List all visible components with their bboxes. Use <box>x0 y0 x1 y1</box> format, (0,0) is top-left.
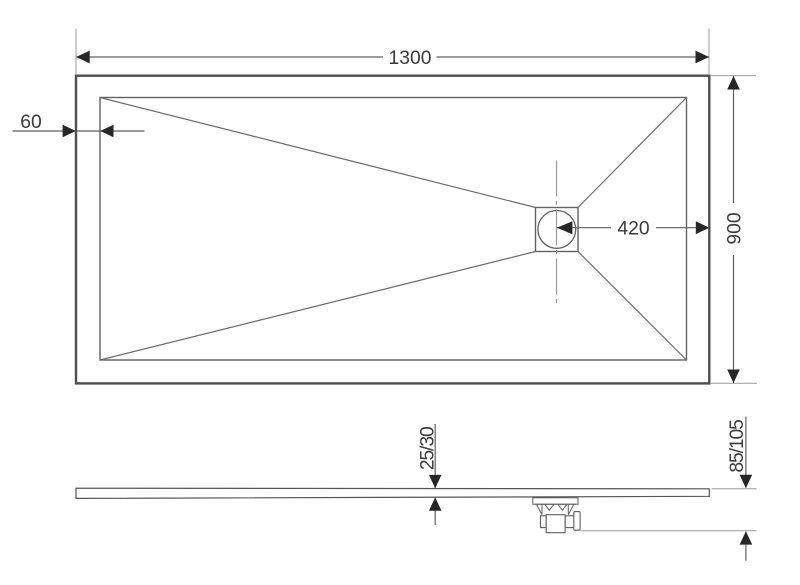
svg-text:25/30: 25/30 <box>418 427 439 470</box>
svg-text:900: 900 <box>724 212 745 244</box>
svg-text:420: 420 <box>617 219 649 240</box>
svg-text:85/105: 85/105 <box>727 420 748 473</box>
svg-text:60: 60 <box>20 112 41 133</box>
svg-text:1300: 1300 <box>389 48 432 69</box>
